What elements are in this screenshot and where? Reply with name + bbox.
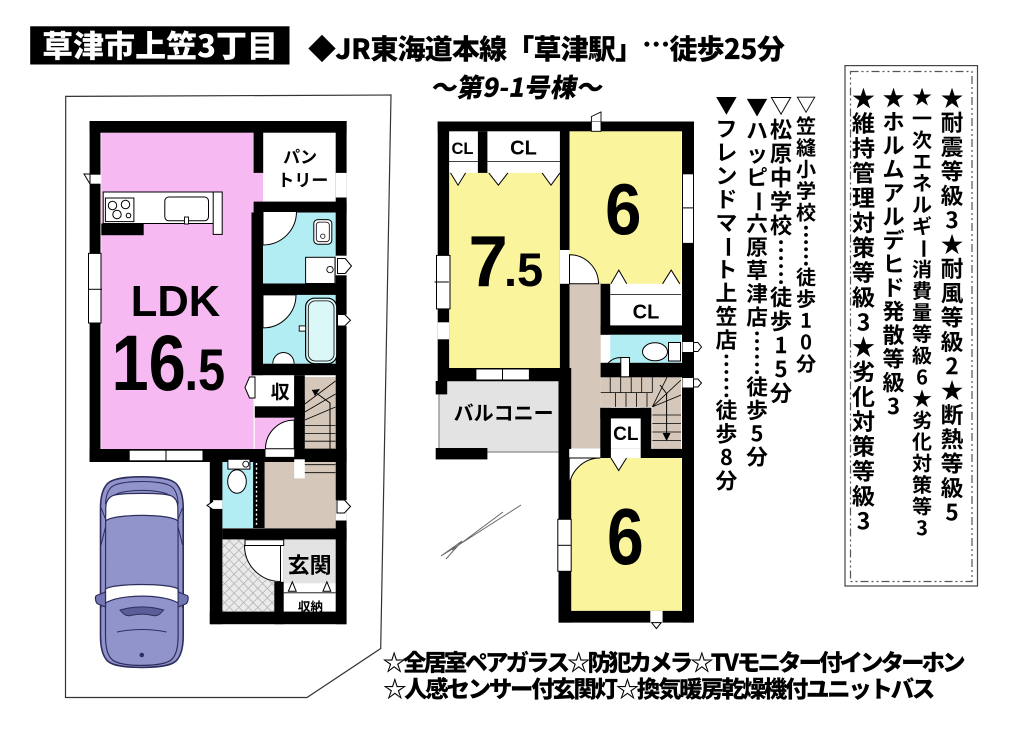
- svg-text:.5: .5: [504, 243, 543, 296]
- svg-text:6: 6: [607, 492, 644, 581]
- svg-text:7: 7: [469, 221, 508, 302]
- svg-text:CL: CL: [633, 302, 660, 324]
- svg-text:CL: CL: [510, 138, 537, 160]
- svg-text:.5: .5: [185, 339, 226, 403]
- svg-text:CL: CL: [613, 424, 639, 445]
- svg-text:16: 16: [112, 319, 186, 408]
- svg-text:CL: CL: [452, 140, 474, 158]
- svg-text:6: 6: [605, 169, 641, 250]
